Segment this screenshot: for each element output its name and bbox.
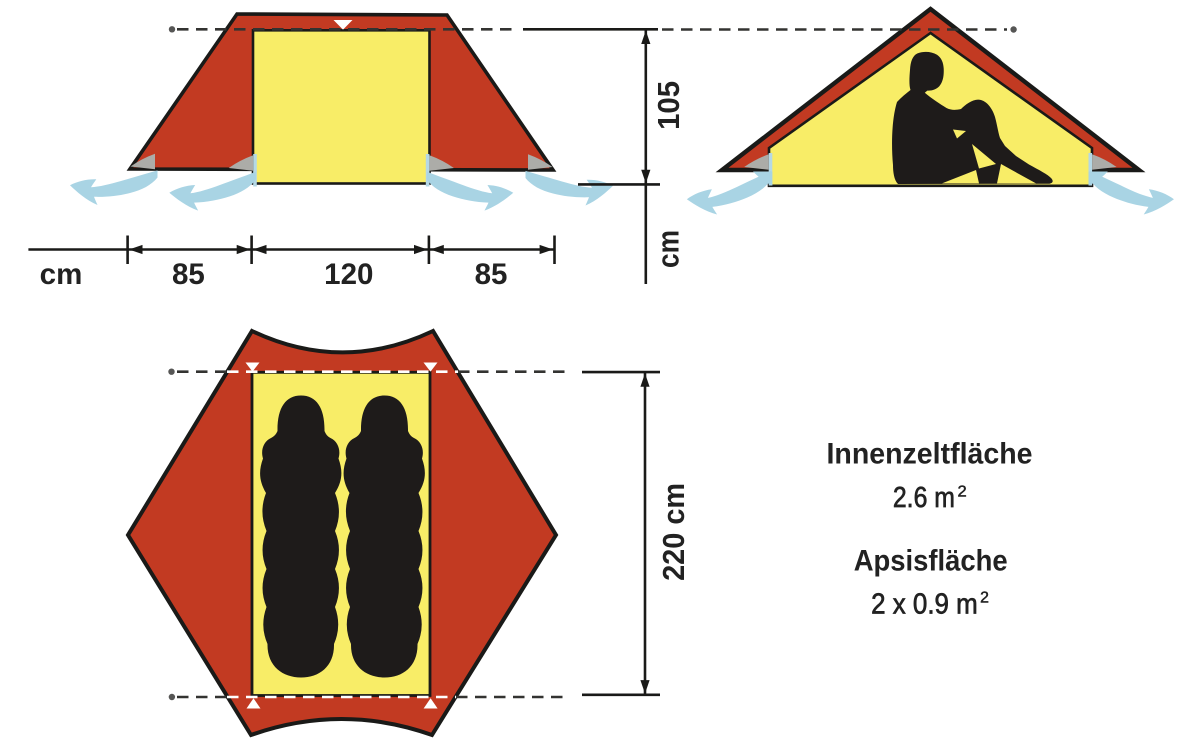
svg-text:cm: cm <box>40 258 83 291</box>
svg-text:Innenzeltfläche: Innenzeltfläche <box>827 438 1033 471</box>
svg-text:cm: cm <box>652 230 686 268</box>
svg-text:220 cm: 220 cm <box>657 483 691 581</box>
svg-text:Apsisfläche: Apsisfläche <box>854 545 1008 578</box>
svg-text:2 x 0.9 m: 2 x 0.9 m <box>871 589 978 621</box>
svg-text:120: 120 <box>324 258 373 291</box>
svg-text:85: 85 <box>475 258 508 291</box>
svg-text:2: 2 <box>958 484 967 501</box>
svg-text:2.6 m: 2.6 m <box>893 482 955 514</box>
svg-text:85: 85 <box>172 258 205 291</box>
svg-text:2: 2 <box>980 590 989 607</box>
svg-text:105: 105 <box>652 81 686 130</box>
